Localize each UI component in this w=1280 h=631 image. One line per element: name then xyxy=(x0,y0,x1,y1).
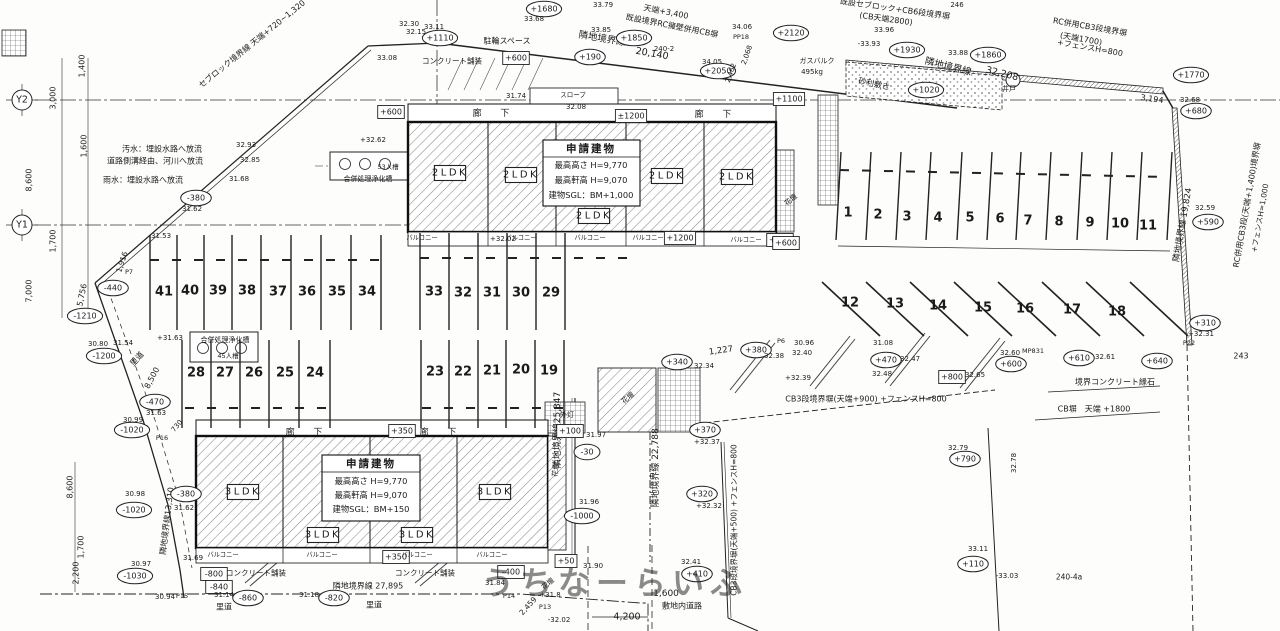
svg-text:31.63: 31.63 xyxy=(146,409,166,417)
plan-label: 1,700 xyxy=(49,230,58,253)
plan-label: 隣地境界線 19,824 xyxy=(1171,187,1195,263)
svg-text:2,200: 2,200 xyxy=(72,562,81,585)
svg-text:最高軒高 H=9,070: 最高軒高 H=9,070 xyxy=(335,490,408,500)
svg-text:1,227: 1,227 xyxy=(708,344,733,357)
elevation-oval: -1020 xyxy=(116,502,151,518)
plan-label: 33.08 xyxy=(377,54,397,62)
plan-label: 32.85 xyxy=(240,156,260,164)
svg-text:最高高さ H=9,770: 最高高さ H=9,770 xyxy=(335,476,408,486)
plan-label: 31.53 xyxy=(151,232,171,240)
svg-text:31.62: 31.62 xyxy=(182,205,202,213)
plan-label: MP831 xyxy=(1022,347,1044,355)
svg-text:3LDK: 3LDK xyxy=(305,530,341,541)
elevation-oval: -1210 xyxy=(67,308,102,324)
parking-stall-number: 1 xyxy=(843,206,852,221)
svg-text:-33.93: -33.93 xyxy=(858,40,881,48)
elevation-oval: +190 xyxy=(575,49,606,65)
unit-label: 3LDK xyxy=(305,528,341,543)
grid-marker-y2: Y2 xyxy=(6,84,38,116)
svg-text:31.14: 31.14 xyxy=(214,591,235,599)
elevation-box: +100 xyxy=(557,425,584,438)
svg-text:最高軒高 H=9,070: 最高軒高 H=9,070 xyxy=(555,175,628,185)
svg-text:31.68: 31.68 xyxy=(229,175,249,183)
svg-text:バルコニー: バルコニー xyxy=(574,234,605,242)
svg-text:32.15: 32.15 xyxy=(406,28,426,36)
svg-text:30.97: 30.97 xyxy=(131,560,151,568)
svg-text:-1200: -1200 xyxy=(92,352,115,361)
svg-text:+1200: +1200 xyxy=(666,234,693,243)
parking-stall-number: 5 xyxy=(965,211,974,226)
plan-label: 32.65 xyxy=(965,371,985,379)
plan-label: +32.32 xyxy=(696,502,722,510)
svg-text:8,500: 8,500 xyxy=(143,366,162,390)
svg-text:2LDK: 2LDK xyxy=(503,170,539,181)
parking-stall-number: 24 xyxy=(306,366,324,381)
plan-label: 32.47 xyxy=(900,355,920,363)
svg-text:+310: +310 xyxy=(1194,319,1216,328)
svg-text:31.62: 31.62 xyxy=(174,504,194,512)
svg-text:4,200: 4,200 xyxy=(613,612,640,623)
unit-label: 2LDK xyxy=(649,169,685,184)
svg-text:里道: 里道 xyxy=(216,602,232,612)
svg-text:バルコニー: バルコニー xyxy=(207,551,238,559)
elevation-oval: +320 xyxy=(687,486,718,502)
plan-label: 31.96 xyxy=(579,498,600,506)
plan-label: -33.93 xyxy=(858,40,881,48)
svg-text:32.78: 32.78 xyxy=(1010,453,1018,473)
plan-label: 33.88 xyxy=(948,49,968,57)
plan-label: 33.79 xyxy=(593,1,613,9)
plan-label: -33.03 xyxy=(996,572,1019,580)
plan-label: 33.11 xyxy=(424,23,444,31)
svg-text:MP831: MP831 xyxy=(1022,347,1044,355)
tile-block-parking xyxy=(658,368,700,432)
svg-text:隣地境界線 27,895: 隣地境界線 27,895 xyxy=(333,581,404,591)
parking-stall-number: 11 xyxy=(1139,219,1157,234)
svg-text:+2120: +2120 xyxy=(777,29,804,38)
parking-stall-number: 17 xyxy=(1063,303,1081,318)
plan-label: 32.48 xyxy=(872,370,892,378)
elevation-oval: +470 xyxy=(871,352,902,368)
plan-label: 30.97 xyxy=(131,560,151,568)
balcony-label: バルコニー xyxy=(505,234,536,242)
svg-text:+110: +110 xyxy=(962,560,984,569)
svg-text:-440: -440 xyxy=(104,284,122,293)
plan-label: P13 xyxy=(539,603,551,611)
svg-text:243: 243 xyxy=(1233,352,1248,361)
plan-label: 3,194 xyxy=(1140,93,1164,105)
plan-label: 合併処理浄化槽 xyxy=(344,174,393,183)
svg-text:+790: +790 xyxy=(954,455,976,464)
svg-text:+470: +470 xyxy=(875,356,897,365)
svg-text:セブロック境界線 天端+720~1,320: セブロック境界線 天端+720~1,320 xyxy=(196,0,307,90)
elevation-box: ±1200 xyxy=(615,110,646,123)
svg-text:+600: +600 xyxy=(1000,360,1022,369)
plan-label: 240-2 xyxy=(654,45,674,53)
svg-text:コンクリート舗装: コンクリート舗装 xyxy=(395,568,455,578)
svg-text:33.08: 33.08 xyxy=(377,54,397,62)
svg-text:+610: +610 xyxy=(1068,354,1090,363)
parking-stall-number: 32 xyxy=(454,286,472,301)
svg-text:汚水：埋設水路へ放流: 汚水：埋設水路へ放流 xyxy=(122,144,202,154)
elevation-oval: +310 xyxy=(1190,315,1221,331)
svg-text:+590: +590 xyxy=(1197,218,1219,227)
plan-label: 30.96 xyxy=(794,339,815,347)
plan-label: 4,200 xyxy=(613,612,640,623)
building-spec: 最高軒高 H=9,070 xyxy=(335,490,408,500)
svg-text:里道: 里道 xyxy=(366,600,382,610)
elevation-oval: +1020 xyxy=(908,82,943,98)
parking-stall-number: 39 xyxy=(209,284,227,299)
svg-text:井戸: 井戸 xyxy=(1002,84,1016,93)
svg-text:+32.32: +32.32 xyxy=(696,502,722,510)
svg-text:合併処理浄化槽: 合併処理浄化槽 xyxy=(344,174,393,183)
elevation-oval: -1000 xyxy=(564,508,599,524)
plan-label: 33.96 xyxy=(874,26,895,34)
svg-text:31.96: 31.96 xyxy=(579,498,600,506)
unit-label: 2LDK xyxy=(576,209,612,224)
parking-stall-number: 40 xyxy=(181,284,199,299)
plan-label: 31.74 xyxy=(506,92,527,100)
svg-text:バルコニー: バルコニー xyxy=(505,234,536,242)
plan-label: 31.62 xyxy=(182,205,202,213)
svg-text:32.79: 32.79 xyxy=(948,444,968,452)
elevation-oval: -860 xyxy=(233,590,264,606)
parking-stall-number: 37 xyxy=(269,285,287,300)
corridor-label: 廊 下 xyxy=(286,426,331,438)
svg-text:3LDK: 3LDK xyxy=(399,530,435,541)
balcony-label: バルコニー xyxy=(207,551,238,559)
plan-label: +32.39 xyxy=(785,374,811,382)
plan-label: 32.93 xyxy=(236,141,256,149)
svg-text:32.61: 32.61 xyxy=(1095,353,1115,361)
plan-label: 33.11 xyxy=(968,545,988,553)
elevation-box: +800 xyxy=(939,371,966,384)
elevation-oval: -1030 xyxy=(117,568,152,584)
svg-text:最高高さ H=9,770: 最高高さ H=9,770 xyxy=(555,160,628,170)
plan-label: 8,500 xyxy=(143,366,162,390)
plan-label: 240-4a xyxy=(1056,573,1082,582)
svg-text:30.98: 30.98 xyxy=(125,490,145,498)
plan-label: 隣地境界線 22,788 xyxy=(649,428,661,508)
svg-text:30.80: 30.80 xyxy=(88,340,108,348)
parking-stall-number: 10 xyxy=(1111,217,1129,232)
svg-text:1,400: 1,400 xyxy=(78,55,87,78)
elevation-oval: +1850 xyxy=(616,30,651,46)
elevation-box: +600 xyxy=(503,52,530,65)
plan-label: コンクリート舗装 xyxy=(422,56,482,66)
svg-text:バルコニー: バルコニー xyxy=(306,551,337,559)
parking-stall-number: 18 xyxy=(1108,305,1126,320)
plan-label: 33.68 xyxy=(524,15,544,23)
svg-text:P6: P6 xyxy=(777,337,785,345)
plan-label: 3,000 xyxy=(49,87,58,110)
plan-label: 32.30 xyxy=(399,20,419,28)
svg-text:32.38: 32.38 xyxy=(764,352,784,360)
plan-label: 32.60 xyxy=(1000,349,1020,357)
svg-text:CB塀 天端 +1800: CB塀 天端 +1800 xyxy=(1058,404,1131,414)
elevation-oval: +370 xyxy=(690,422,721,438)
svg-text:+1770: +1770 xyxy=(1177,71,1204,80)
svg-text:+320: +320 xyxy=(691,490,713,499)
plan-label: 32.08 xyxy=(566,103,586,111)
svg-text:道路側溝経由、河川へ放流: 道路側溝経由、河川へ放流 xyxy=(107,156,203,166)
plan-label: 45人槽 xyxy=(217,351,239,360)
grid-markers: Y2Y1 xyxy=(6,84,38,241)
svg-text:+1020: +1020 xyxy=(912,86,939,95)
plan-label: ガスバルク xyxy=(800,56,835,65)
plan-label: 隣地境界線 27,895 xyxy=(333,581,404,591)
svg-text:-33.03: -33.03 xyxy=(996,572,1019,580)
svg-text:3,000: 3,000 xyxy=(49,87,58,110)
plan-label: 31.08 xyxy=(873,339,893,347)
parking-stall-number: 8 xyxy=(1054,215,1063,230)
svg-text:495kg: 495kg xyxy=(801,68,823,76)
plan-label: 汚水：埋設水路へ放流 xyxy=(122,144,202,154)
svg-text:246: 246 xyxy=(950,1,964,9)
svg-text:33.96: 33.96 xyxy=(874,26,895,34)
plan-label: 8,600 xyxy=(25,169,34,192)
plan-label: P6 xyxy=(777,337,785,345)
plan-label: スロープ xyxy=(560,91,586,99)
parking-stall-number: 26 xyxy=(245,366,263,381)
svg-text:雨水：埋設水路へ放流: 雨水：埋設水路へ放流 xyxy=(103,175,183,185)
plan-label: 32.38 xyxy=(764,352,784,360)
svg-text:Y1: Y1 xyxy=(15,220,28,231)
elevation-oval: -380 xyxy=(181,190,212,206)
plan-label: CB塀 天端 +1800 xyxy=(1058,404,1131,414)
plan-label: 30.94 xyxy=(155,593,176,601)
plan-label: 31.18 xyxy=(299,591,319,599)
parking-stall-number: 21 xyxy=(483,364,501,379)
parking-stall-number: 31 xyxy=(483,286,501,301)
svg-text:+32.62: +32.62 xyxy=(360,136,386,144)
svg-text:2,068: 2,068 xyxy=(740,44,754,66)
balcony-label: バルコニー xyxy=(632,234,663,242)
corner-block xyxy=(2,30,26,56)
watermark: うちなーらいふ xyxy=(482,564,748,602)
svg-text:外灯: 外灯 xyxy=(560,410,574,419)
svg-text:33.11: 33.11 xyxy=(968,545,988,553)
plan-label: PP18 xyxy=(733,33,749,41)
plan-label: P15 xyxy=(176,592,188,600)
svg-text:1,700: 1,700 xyxy=(77,536,86,559)
svg-text:+190: +190 xyxy=(579,53,601,62)
svg-text:31.54: 31.54 xyxy=(113,339,134,347)
unit-label: 3LDK xyxy=(225,485,261,500)
plan-label: 31.69 xyxy=(183,554,203,562)
svg-text:+31.63: +31.63 xyxy=(157,334,183,342)
plan-label: P16 xyxy=(156,434,168,442)
svg-text:45人槽: 45人槽 xyxy=(217,351,239,360)
svg-text:32.85: 32.85 xyxy=(240,156,260,164)
svg-text:-32.02: -32.02 xyxy=(548,616,571,624)
unit-label: 2LDK xyxy=(503,168,539,183)
parking-stall-number: 28 xyxy=(187,366,205,381)
svg-text:30.96: 30.96 xyxy=(794,339,815,347)
plan-label: P22 xyxy=(1183,339,1195,347)
parking-stall-number: 7 xyxy=(1023,214,1032,229)
balcony-label: バルコニー xyxy=(406,234,437,242)
elevation-oval: -380 xyxy=(171,486,202,502)
parking-stall-number: 14 xyxy=(929,299,947,314)
plan-label: 31.14 xyxy=(214,591,235,599)
balcony-label: バルコニー xyxy=(574,234,605,242)
svg-text:7,000: 7,000 xyxy=(25,280,34,303)
plan-label: 32.79 xyxy=(948,444,968,452)
plan-label: 1,700 xyxy=(77,536,86,559)
svg-text:8,600: 8,600 xyxy=(66,476,75,499)
plan-label: 里道 xyxy=(366,600,382,610)
parking-stall-number: 33 xyxy=(425,285,443,300)
plan-label: 31.97 xyxy=(586,431,606,439)
plan-label: 1,600 xyxy=(80,135,89,158)
elevation-oval: -1200 xyxy=(86,348,121,364)
svg-text:申請建物: 申請建物 xyxy=(346,457,396,470)
plan-label: 井戸 xyxy=(1002,84,1016,93)
svg-text:P16: P16 xyxy=(156,434,168,442)
svg-text:30.94: 30.94 xyxy=(155,593,176,601)
plan-label: 敷地内道路 xyxy=(662,601,702,611)
elevation-oval: +1930 xyxy=(889,42,924,58)
elevation-oval: +790 xyxy=(950,451,981,467)
site-plan-drawing: セブロック境界線 天端+720~1,3201,4003,0001,6008,60… xyxy=(0,0,1280,631)
plan-label: -32.02 xyxy=(548,616,571,624)
svg-text:+370: +370 xyxy=(694,426,716,435)
unit-label: 2LDK xyxy=(719,170,755,185)
building-spec: 建物SGL：BM+1,000 xyxy=(549,190,634,200)
elevation-oval: +610 xyxy=(1064,350,1095,366)
unit-label: 3LDK xyxy=(477,485,513,500)
corridor-label: 廊 下 xyxy=(695,108,740,120)
svg-text:コンクリート舗装: コンクリート舗装 xyxy=(422,56,482,66)
svg-text:2LDK: 2LDK xyxy=(649,171,685,182)
svg-text:+32.39: +32.39 xyxy=(785,374,811,382)
plan-label: 32.78 xyxy=(1010,453,1018,473)
svg-text:-800: -800 xyxy=(205,570,223,579)
svg-text:31.18: 31.18 xyxy=(299,591,319,599)
parking-stall-number: 19 xyxy=(540,364,558,379)
parking-stall-number: 16 xyxy=(1016,302,1034,317)
elevation-oval: +600 xyxy=(996,356,1027,372)
svg-text:隣地境界線 22,788: 隣地境界線 22,788 xyxy=(649,428,661,508)
elevation-oval: +2120 xyxy=(773,25,808,41)
parking-stall-number: 12 xyxy=(841,296,859,311)
svg-text:境界コンクリート縁石: 境界コンクリート縁石 xyxy=(1075,377,1155,387)
svg-text:バルコニー: バルコニー xyxy=(401,551,432,559)
svg-text:-1030: -1030 xyxy=(123,572,146,581)
elevation-oval: +110 xyxy=(958,556,989,572)
elevation-oval: -30 xyxy=(574,444,600,460)
svg-text:+340: +340 xyxy=(666,358,688,367)
svg-text:31.69: 31.69 xyxy=(183,554,203,562)
parking-stall-number: 25 xyxy=(276,366,294,381)
plan-label: 1,400 xyxy=(78,55,87,78)
plan-label: 合併処理浄化槽 xyxy=(201,335,250,344)
svg-text:3LDK: 3LDK xyxy=(477,487,513,498)
plan-label: P7 xyxy=(125,268,133,276)
svg-text:+1110: +1110 xyxy=(426,34,453,43)
plan-label: 里道 xyxy=(216,602,232,612)
tile-strip xyxy=(818,95,838,205)
svg-text:3,194: 3,194 xyxy=(1140,93,1164,105)
svg-text:P22: P22 xyxy=(1183,339,1195,347)
svg-text:スロープ: スロープ xyxy=(560,91,586,99)
parking-stall-number: 34 xyxy=(358,285,376,300)
plan-label: 53人槽 xyxy=(377,162,399,171)
parking-stall-number: 13 xyxy=(886,297,904,312)
building-spec: 最高高さ H=9,770 xyxy=(555,160,628,170)
parking-stall-number: 9 xyxy=(1085,216,1094,231)
svg-text:32.30: 32.30 xyxy=(399,20,419,28)
svg-text:駐輪スペース: 駐輪スペース xyxy=(483,36,530,46)
svg-text:ガスバルク: ガスバルク xyxy=(800,56,835,65)
svg-text:240-4a: 240-4a xyxy=(1056,573,1082,582)
svg-text:+1930: +1930 xyxy=(893,46,920,55)
plan-label: 2,068 xyxy=(740,44,754,66)
building-spec: 最高軒高 H=9,070 xyxy=(555,175,628,185)
svg-text:1,600: 1,600 xyxy=(80,135,89,158)
svg-text:PP18: PP18 xyxy=(733,33,749,41)
plan-label: 32.40 xyxy=(792,349,812,357)
elevation-oval: +340 xyxy=(662,354,693,370)
svg-text:-1000: -1000 xyxy=(570,512,593,521)
svg-text:-820: -820 xyxy=(325,594,343,603)
elevation-box: -800 xyxy=(201,568,228,581)
svg-text:-470: -470 xyxy=(146,398,164,407)
svg-text:+32.31: +32.31 xyxy=(1188,330,1214,338)
parking-stall-number: 15 xyxy=(974,301,992,316)
plan-label: 5,756 xyxy=(75,283,89,307)
elevation-oval: -820 xyxy=(319,590,350,606)
plan-label: 1,227 xyxy=(708,344,733,357)
svg-text:33.79: 33.79 xyxy=(593,1,613,9)
balcony-label: バルコニー xyxy=(401,551,432,559)
plan-label: セブロック境界線 天端+720~1,320 xyxy=(196,0,307,90)
svg-text:建物SGL：BM+1,000: 建物SGL：BM+1,000 xyxy=(549,190,634,200)
parking-stall-number: 6 xyxy=(995,212,1004,227)
svg-text:32.08: 32.08 xyxy=(566,103,586,111)
plan-label: 246 xyxy=(950,1,964,9)
plan-label: 雨水：埋設水路へ放流 xyxy=(103,175,183,185)
svg-text:8,600: 8,600 xyxy=(25,169,34,192)
svg-text:-380: -380 xyxy=(177,490,195,499)
svg-text:32.34: 32.34 xyxy=(694,362,715,370)
svg-text:2LDK: 2LDK xyxy=(719,172,755,183)
svg-text:53人槽: 53人槽 xyxy=(377,162,399,171)
svg-text:敷地内道路: 敷地内道路 xyxy=(662,601,702,611)
svg-text:+1860: +1860 xyxy=(974,51,1001,60)
svg-text:建物SGL：BM+150: 建物SGL：BM+150 xyxy=(333,504,410,514)
building-info-title: 申請建物 xyxy=(566,142,616,155)
svg-text:申請建物: 申請建物 xyxy=(566,142,616,155)
plan-label: 34.06 xyxy=(732,23,753,31)
svg-text:+600: +600 xyxy=(380,108,402,117)
elevation-oval: +680 xyxy=(1181,103,1212,119)
svg-text:±1200: ±1200 xyxy=(617,112,644,121)
plan-label: 境界コンクリート縁石 xyxy=(1075,377,1155,387)
svg-text:P7: P7 xyxy=(125,268,133,276)
svg-text:合併処理浄化槽: 合併処理浄化槽 xyxy=(201,335,250,344)
svg-text:+600: +600 xyxy=(775,239,797,248)
plan-label: 495kg xyxy=(801,68,823,76)
plan-label: 7,000 xyxy=(25,280,34,303)
elevation-oval: +590 xyxy=(1193,214,1224,230)
plan-label: 32.34 xyxy=(694,362,715,370)
plan-label: 32.61 xyxy=(1095,353,1115,361)
svg-text:Y2: Y2 xyxy=(15,95,28,106)
svg-text:バルコニー: バルコニー xyxy=(476,551,507,559)
